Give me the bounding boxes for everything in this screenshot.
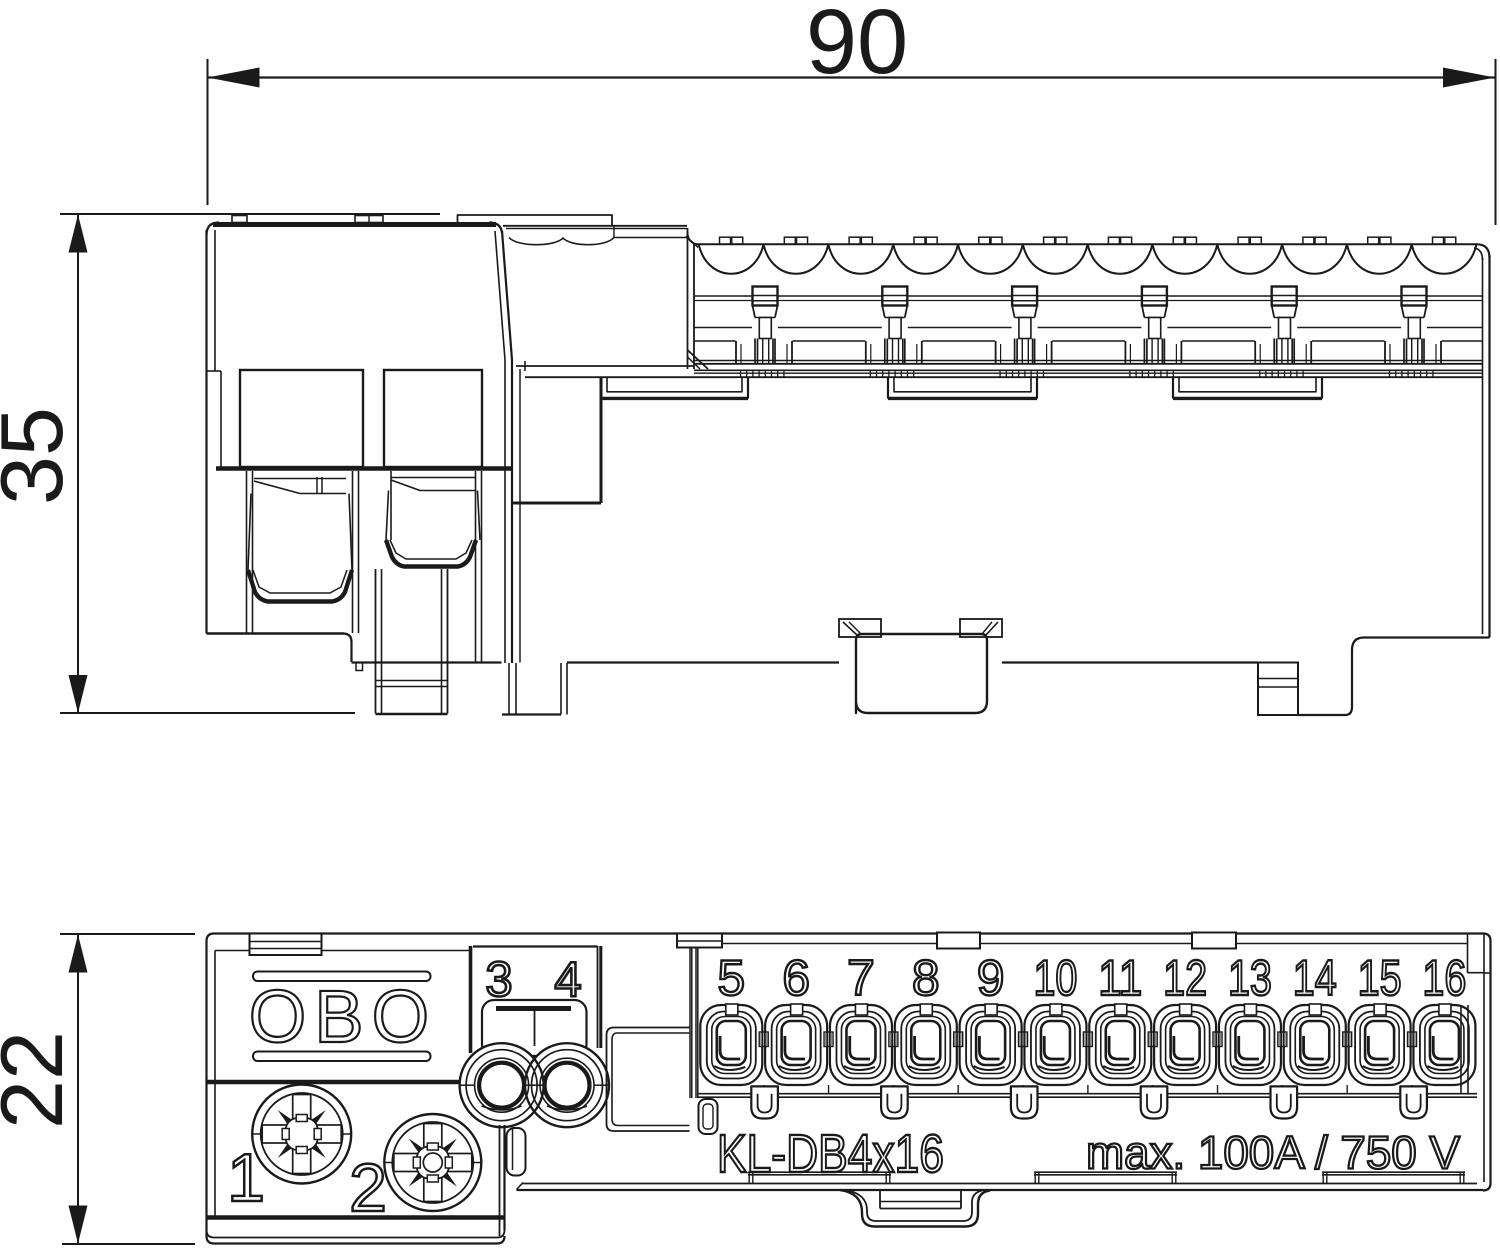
svg-text:5: 5 <box>717 950 745 1006</box>
svg-text:16: 16 <box>1422 950 1466 1006</box>
svg-text:9: 9 <box>977 950 1005 1006</box>
svg-text:1: 1 <box>227 1140 265 1216</box>
svg-text:90: 90 <box>806 0 908 93</box>
svg-text:KL-DB4x16: KL-DB4x16 <box>717 1124 944 1184</box>
svg-text:8: 8 <box>912 950 940 1006</box>
svg-text:10: 10 <box>1033 950 1077 1006</box>
svg-text:22: 22 <box>0 1031 81 1129</box>
svg-text:max. 100A / 750 V: max. 100A / 750 V <box>1086 1127 1460 1179</box>
svg-text:6: 6 <box>782 950 810 1006</box>
svg-text:14: 14 <box>1293 950 1337 1006</box>
svg-text:35: 35 <box>0 407 81 505</box>
svg-text:13: 13 <box>1228 950 1272 1006</box>
svg-text:OBO: OBO <box>249 975 437 1058</box>
svg-text:12: 12 <box>1163 950 1207 1006</box>
svg-text:7: 7 <box>847 950 875 1006</box>
svg-text:11: 11 <box>1098 950 1142 1006</box>
svg-text:2: 2 <box>349 1150 387 1226</box>
svg-text:15: 15 <box>1358 950 1402 1006</box>
